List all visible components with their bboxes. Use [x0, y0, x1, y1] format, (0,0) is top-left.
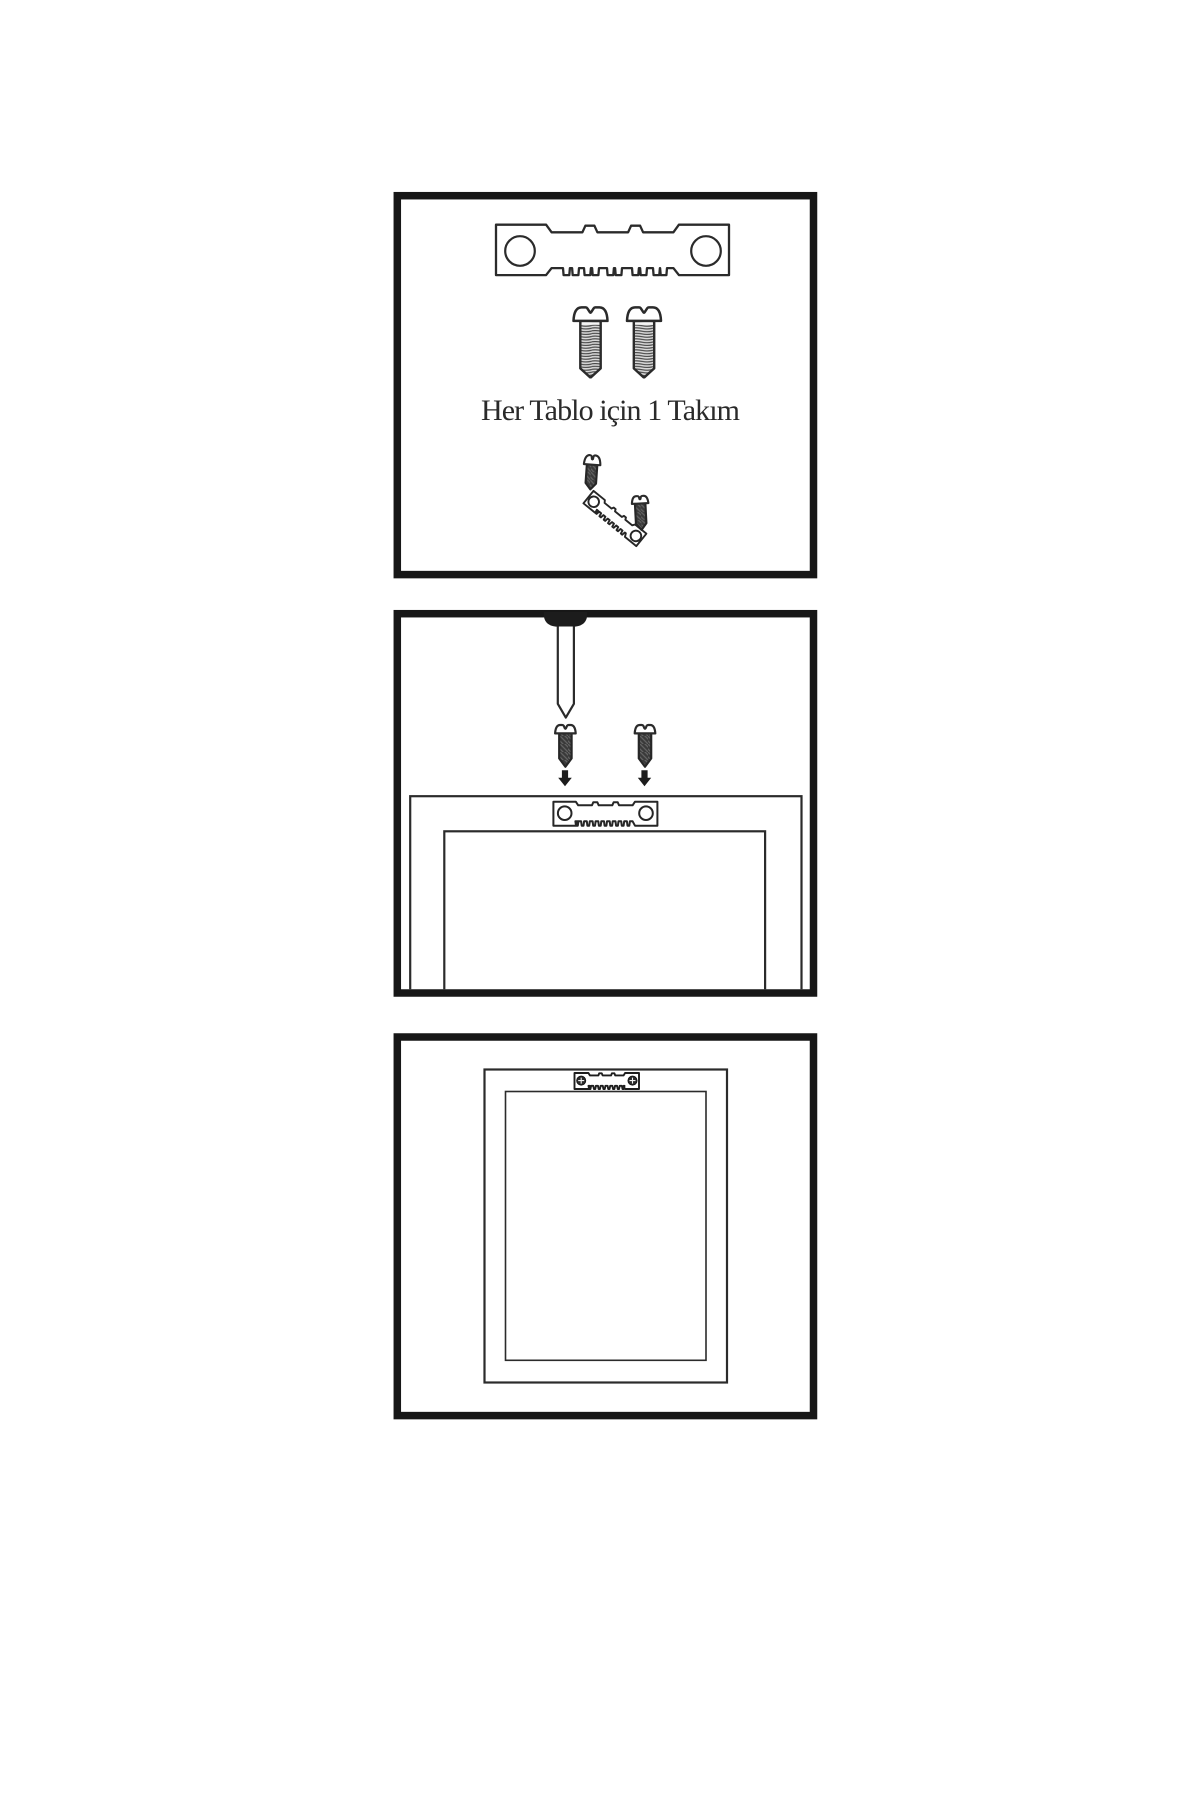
svg-text:Her Tablo için 1 Takım: Her Tablo için 1 Takım	[481, 394, 740, 427]
